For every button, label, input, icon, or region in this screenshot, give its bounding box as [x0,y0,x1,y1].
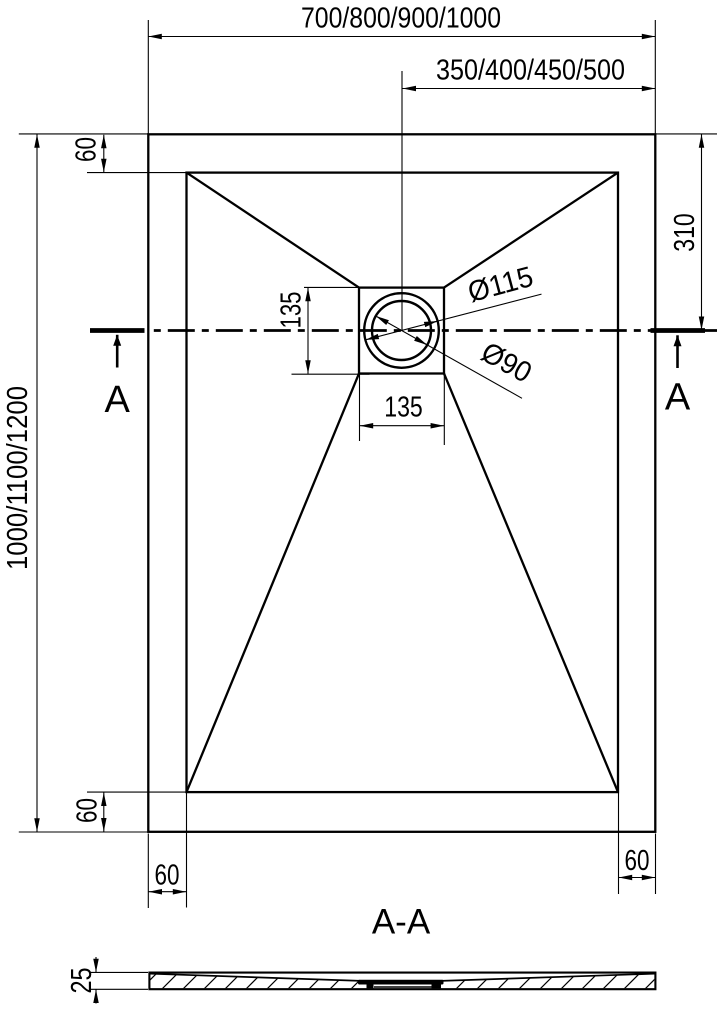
svg-text:A-A: A-A [372,903,431,942]
svg-text:310: 310 [669,213,701,252]
svg-text:135: 135 [276,292,308,329]
svg-text:135: 135 [384,392,423,424]
svg-text:60: 60 [72,798,104,823]
svg-text:60: 60 [625,845,650,877]
svg-text:700/800/900/1000: 700/800/900/1000 [301,3,501,35]
svg-text:350/400/450/500: 350/400/450/500 [436,55,625,87]
svg-text:60: 60 [155,860,180,892]
svg-text:60: 60 [71,137,103,162]
svg-text:A: A [665,377,691,419]
svg-text:A: A [105,379,131,421]
svg-text:1000/1100/1200: 1000/1100/1200 [2,386,34,570]
svg-text:25: 25 [66,968,98,994]
